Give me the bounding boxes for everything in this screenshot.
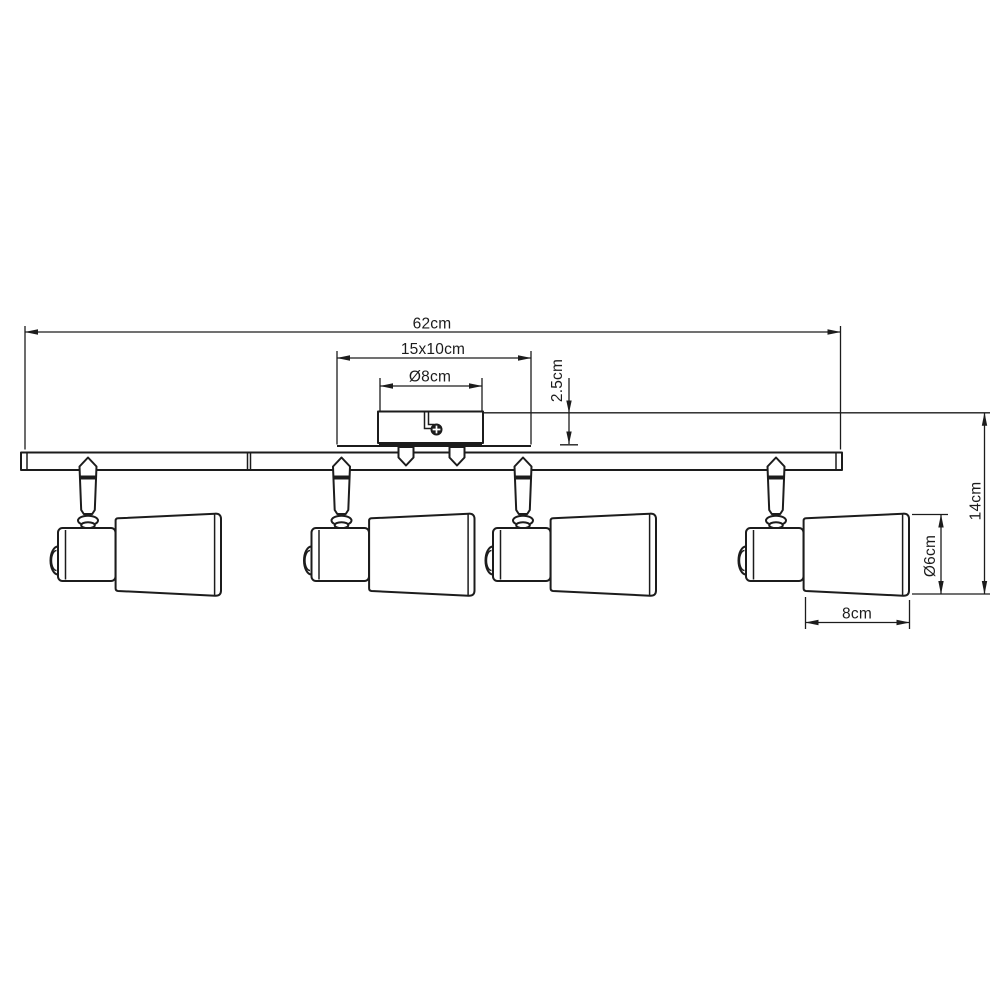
dimension-shade-diameter: Ø6cm bbox=[912, 515, 948, 595]
spotlight-unit-3 bbox=[486, 458, 657, 596]
ceiling-track-bar bbox=[21, 453, 842, 471]
technical-drawing-canvas: 62cm 15x10cm Ø8cm 2.5cm 14cm Ø6cm bbox=[0, 0, 1000, 1000]
canopy-diameter-label: Ø8cm bbox=[409, 369, 451, 386]
dimension-shade-length: 8cm bbox=[806, 597, 910, 629]
track-bar bbox=[21, 453, 842, 471]
shade-length-label: 8cm bbox=[842, 606, 872, 623]
canopy-box bbox=[378, 412, 483, 444]
canopy-height-label: 2.5cm bbox=[549, 359, 566, 402]
spotlight-bar-technical-drawing: 62cm 15x10cm Ø8cm 2.5cm 14cm Ø6cm bbox=[0, 0, 1000, 1000]
arrowhead bbox=[566, 401, 571, 414]
dimension-canopy-height: 2.5cm bbox=[549, 359, 578, 445]
canopy-plate-label: 15x10cm bbox=[401, 341, 465, 358]
shade-diameter-label: Ø6cm bbox=[922, 535, 939, 577]
arrowhead bbox=[566, 432, 571, 445]
spotlight-unit-2 bbox=[304, 458, 475, 596]
overall-width-label: 62cm bbox=[413, 316, 452, 333]
spotlight-unit-4 bbox=[739, 458, 910, 596]
dimension-canopy-diameter: Ø8cm bbox=[380, 369, 482, 412]
total-height-label: 14cm bbox=[968, 482, 985, 521]
spotlight-unit-1 bbox=[51, 458, 222, 596]
